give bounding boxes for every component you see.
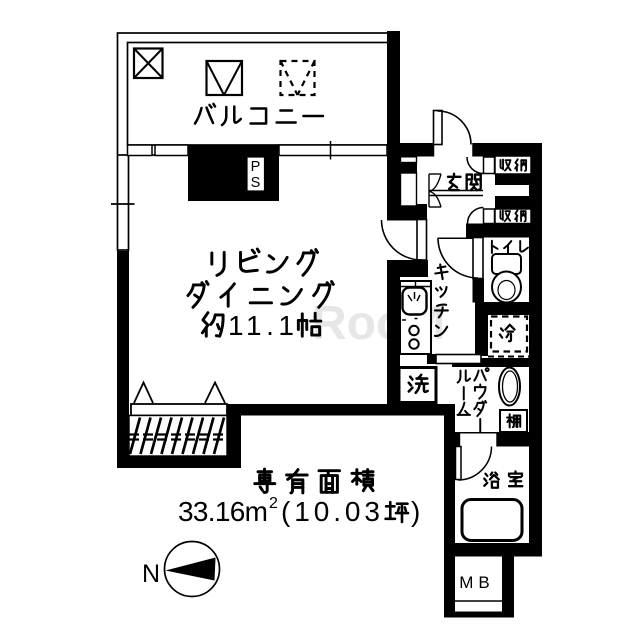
svg-text:MB: MB bbox=[459, 573, 495, 592]
svg-text:11.1: 11.1 bbox=[228, 310, 294, 341]
svg-text:S: S bbox=[251, 175, 261, 191]
svg-text:P: P bbox=[251, 159, 261, 175]
svg-text:33.16m: 33.16m bbox=[178, 496, 268, 527]
svg-text:N: N bbox=[142, 560, 160, 588]
svg-text:): ) bbox=[411, 496, 420, 527]
svg-text:2: 2 bbox=[269, 495, 278, 512]
